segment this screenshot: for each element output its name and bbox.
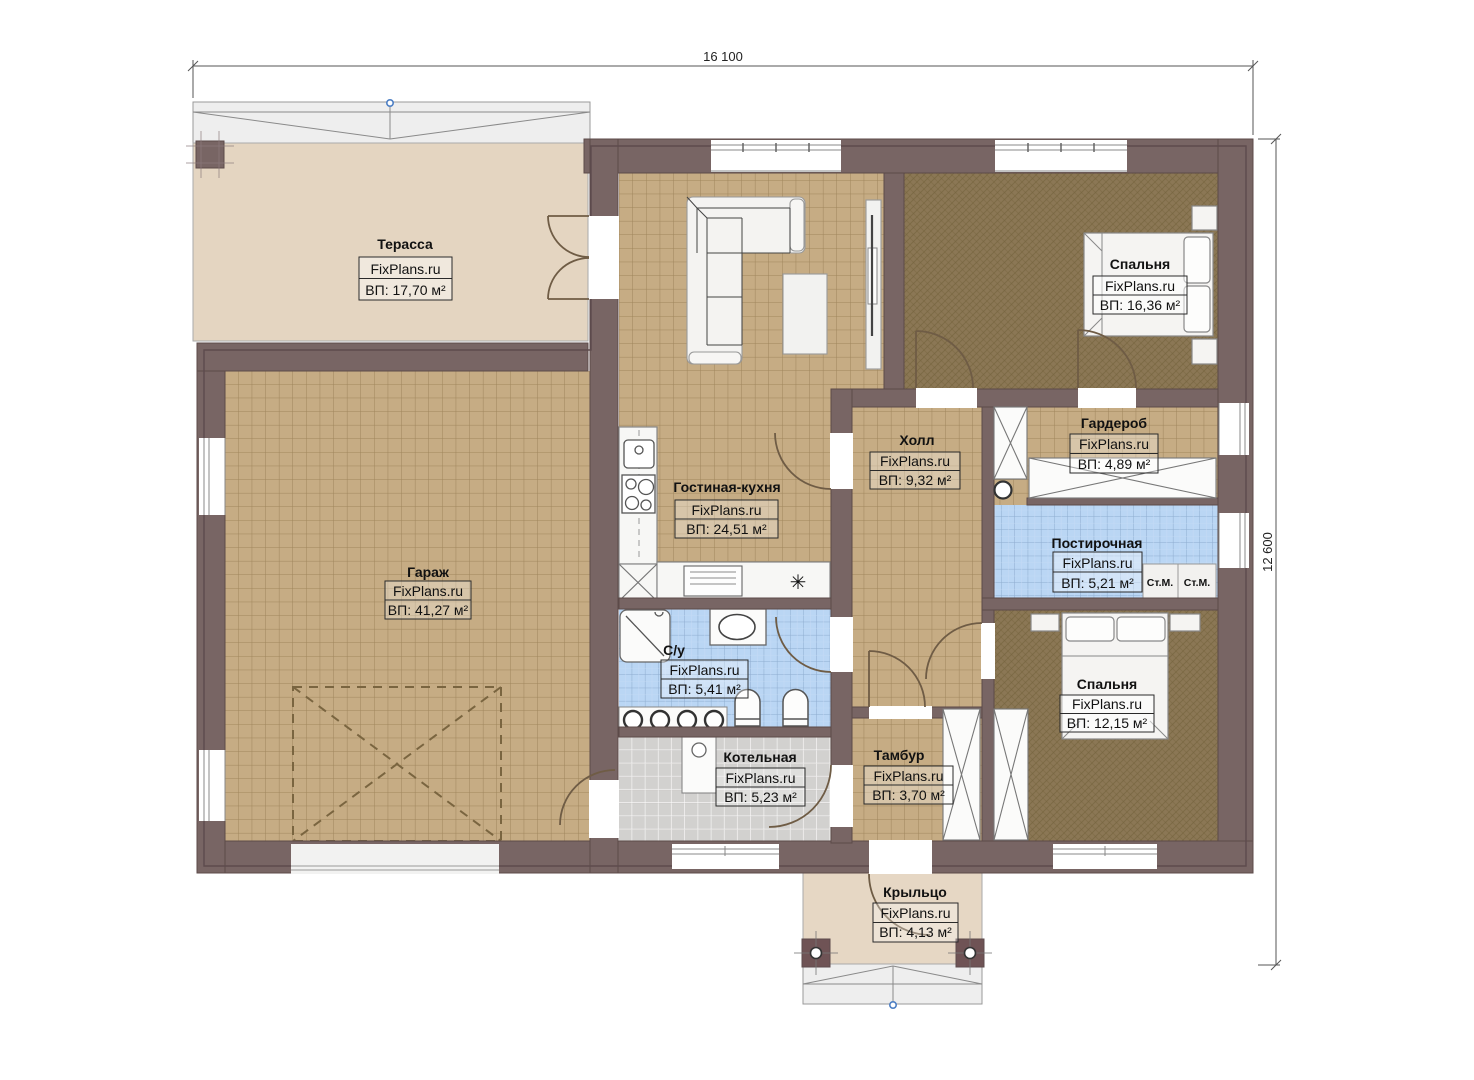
svg-text:Ст.М.: Ст.М. (1147, 577, 1173, 589)
svg-text:ВП: 4,89 м²: ВП: 4,89 м² (1078, 456, 1151, 472)
svg-text:FixPlans.ru: FixPlans.ru (1105, 278, 1175, 294)
svg-text:FixPlans.ru: FixPlans.ru (880, 905, 950, 921)
svg-text:Крыльцо: Крыльцо (883, 884, 947, 900)
svg-text:ВП: 5,23 м²: ВП: 5,23 м² (724, 789, 797, 805)
svg-text:Холл: Холл (899, 432, 934, 448)
svg-text:ВП: 17,70 м²: ВП: 17,70 м² (365, 282, 446, 298)
svg-text:С/у: С/у (663, 642, 685, 658)
svg-text:16 100: 16 100 (703, 49, 743, 64)
svg-text:Гардероб: Гардероб (1081, 415, 1148, 431)
svg-text:FixPlans.ru: FixPlans.ru (880, 453, 950, 469)
svg-text:FixPlans.ru: FixPlans.ru (1072, 696, 1142, 712)
svg-text:Постирочная: Постирочная (1052, 535, 1143, 551)
svg-text:ВП: 12,15 м²: ВП: 12,15 м² (1067, 715, 1148, 731)
svg-text:ВП: 4,13 м²: ВП: 4,13 м² (879, 924, 952, 940)
svg-text:ВП: 16,36 м²: ВП: 16,36 м² (1100, 297, 1181, 313)
svg-text:ВП: 5,21 м²: ВП: 5,21 м² (1061, 575, 1134, 591)
svg-text:Спальня: Спальня (1077, 676, 1137, 692)
svg-text:ВП: 41,27 м²: ВП: 41,27 м² (388, 602, 469, 618)
svg-text:FixPlans.ru: FixPlans.ru (393, 583, 463, 599)
svg-text:Терасса: Терасса (377, 236, 433, 252)
svg-text:ВП: 5,41 м²: ВП: 5,41 м² (668, 681, 741, 697)
svg-text:Ст.М.: Ст.М. (1184, 577, 1210, 589)
svg-text:ВП: 24,51 м²: ВП: 24,51 м² (686, 521, 767, 537)
svg-text:FixPlans.ru: FixPlans.ru (1062, 555, 1132, 571)
svg-text:12 600: 12 600 (1260, 532, 1275, 572)
svg-text:ВП: 9,32 м²: ВП: 9,32 м² (879, 472, 952, 488)
svg-text:ВП: 3,70 м²: ВП: 3,70 м² (872, 787, 945, 803)
svg-text:Котельная: Котельная (723, 749, 796, 765)
svg-text:Спальня: Спальня (1110, 256, 1170, 272)
svg-text:FixPlans.ru: FixPlans.ru (691, 502, 761, 518)
svg-text:FixPlans.ru: FixPlans.ru (1079, 436, 1149, 452)
svg-text:FixPlans.ru: FixPlans.ru (725, 770, 795, 786)
svg-text:FixPlans.ru: FixPlans.ru (370, 261, 440, 277)
svg-text:Гараж: Гараж (407, 564, 450, 580)
svg-text:Тамбур: Тамбур (874, 747, 925, 763)
svg-text:Гостиная-кухня: Гостиная-кухня (673, 479, 780, 495)
svg-text:FixPlans.ru: FixPlans.ru (669, 662, 739, 678)
svg-text:✳: ✳ (790, 572, 807, 594)
svg-text:FixPlans.ru: FixPlans.ru (873, 768, 943, 784)
